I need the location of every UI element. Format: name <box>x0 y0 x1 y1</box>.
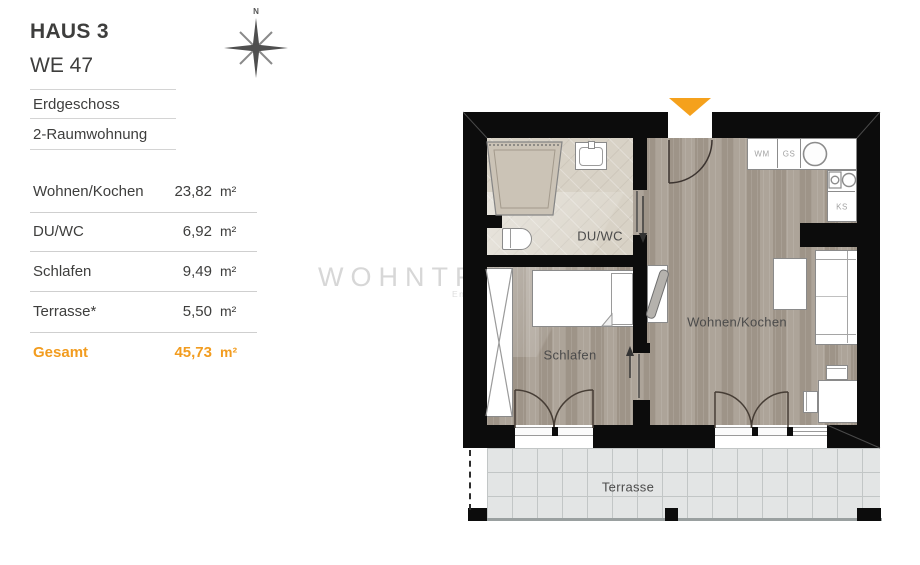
area-row-unit: m² <box>220 183 236 199</box>
area-row-unit: m² <box>220 303 236 319</box>
room-label-bathroom: DU/WC <box>577 229 623 244</box>
entrance-arrow-icon <box>669 98 711 116</box>
room-label-terrace: Terrasse <box>602 480 654 495</box>
area-row-value: 5,50 <box>148 303 212 320</box>
area-row-label: Schlafen <box>33 263 91 280</box>
bedroom-door-arrow <box>626 346 634 356</box>
terrace-door-swing <box>752 392 789 428</box>
shower <box>487 142 562 215</box>
area-row-unit: m² <box>220 263 236 279</box>
divider <box>30 291 257 292</box>
terrace-door-swing <box>715 392 752 428</box>
area-row-unit: m² <box>220 223 236 239</box>
compass-rose-icon: N <box>222 0 290 82</box>
area-row-label: Wohnen/Kochen <box>33 183 144 200</box>
divider <box>30 332 257 333</box>
bathroom-door-arrow <box>639 233 647 243</box>
room-label-living: Wohnen/Kochen <box>687 315 787 330</box>
unit-number: WE 47 <box>30 54 93 78</box>
sink <box>804 143 827 166</box>
divider <box>30 212 257 213</box>
divider <box>30 149 176 150</box>
total-unit: m² <box>220 344 237 360</box>
appliance-label-ks: KS <box>836 203 848 212</box>
appliance-label-wm: WM <box>754 150 769 159</box>
area-row-value: 6,92 <box>148 223 212 240</box>
compass-north-label: N <box>253 7 259 16</box>
entrance-door-swing <box>669 140 712 183</box>
house-title: HAUS 3 <box>30 20 109 44</box>
divider <box>30 251 257 252</box>
floor-level-label: Erdgeschoss <box>33 96 120 113</box>
total-value: 45,73 <box>148 344 212 361</box>
radiator-element <box>645 269 669 319</box>
apartment-type-label: 2-Raumwohnung <box>33 126 147 143</box>
floorplan-sheet: HAUS 3 WE 47 Erdgeschoss 2-Raumwohnung W… <box>0 0 920 565</box>
area-row-label: Terrasse* <box>33 303 96 320</box>
room-label-bedroom: Schlafen <box>544 348 597 363</box>
floor-plan: DU/WC Schlafen Wohnen/Kochen Terrasse WM… <box>463 97 883 525</box>
terrace-door-swing <box>554 390 593 428</box>
plan-linework <box>463 97 883 525</box>
total-label: Gesamt <box>33 344 88 361</box>
divider <box>30 118 176 119</box>
area-row-value: 23,82 <box>148 183 212 200</box>
appliance-label-gs: GS <box>783 150 796 159</box>
terrace-door-swing <box>515 390 554 428</box>
area-row-value: 9,49 <box>148 263 212 280</box>
divider <box>30 89 176 90</box>
area-row-label: DU/WC <box>33 223 84 240</box>
